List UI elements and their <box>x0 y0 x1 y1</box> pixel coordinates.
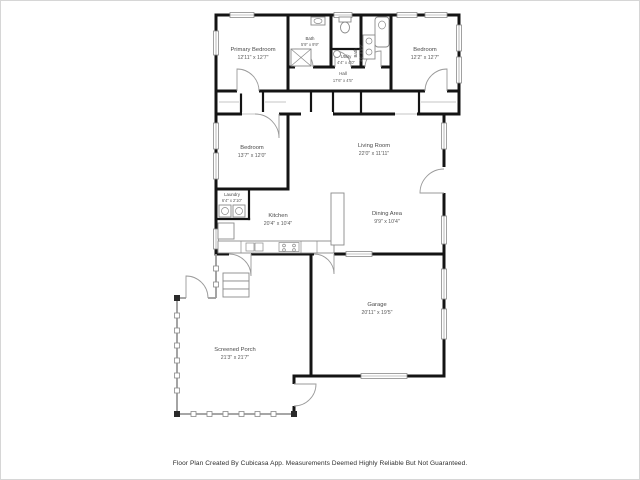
svg-text:Hall: Hall <box>339 71 347 76</box>
water-heater-icon <box>334 51 341 58</box>
opening-closet-2 <box>395 112 417 117</box>
svg-text:13'7" x 12'0": 13'7" x 12'0" <box>238 153 267 159</box>
door-patio-living <box>420 167 446 193</box>
shower-icon <box>291 49 311 66</box>
window <box>442 123 447 149</box>
floor-plan-canvas: Primary Bedroom 12'11" x 12'7" Bath 5'9"… <box>1 1 639 479</box>
svg-text:Dining Area: Dining Area <box>372 211 403 217</box>
svg-text:12'11" x 12'7": 12'11" x 12'7" <box>238 55 269 61</box>
room-label-hall: Hall 17'6" x 4'5" <box>333 71 354 83</box>
porch-corner-post <box>174 295 180 301</box>
svg-text:Living Room: Living Room <box>358 143 390 149</box>
room-label-bath-1: Bath 5'9" x 9'9" <box>301 36 319 47</box>
svg-text:Kitchen: Kitchen <box>268 213 287 219</box>
porch-corner-post <box>291 411 297 417</box>
svg-text:21'3" x 21'7": 21'3" x 21'7" <box>221 355 250 361</box>
svg-text:5'9" x 9'9": 5'9" x 9'9" <box>301 42 319 47</box>
door-bedroom-2 <box>425 69 447 94</box>
bathtub-icon <box>375 17 389 47</box>
svg-text:Primary Bedroom: Primary Bedroom <box>230 47 275 53</box>
window <box>442 216 447 244</box>
sink-icon <box>311 17 325 25</box>
room-label-bedroom-3: Bedroom 13'7" x 12'0" <box>238 145 267 159</box>
svg-text:17'6" x 4'5": 17'6" x 4'5" <box>333 78 354 83</box>
svg-text:20'4" x 10'4": 20'4" x 10'4" <box>264 221 293 227</box>
fridge-icon <box>218 223 234 239</box>
disclaimer-text: Floor Plan Created By Cubicasa App. Meas… <box>1 460 639 467</box>
svg-text:Laundry: Laundry <box>224 192 241 197</box>
svg-text:Bath: Bath <box>353 48 358 58</box>
room-label-garage: Garage 20'11" x 19'5" <box>362 302 393 316</box>
window <box>214 31 219 55</box>
room-label-primary-bedroom: Primary Bedroom 12'11" x 12'7" <box>230 47 275 61</box>
svg-text:20'11" x 19'5": 20'11" x 19'5" <box>362 310 393 316</box>
window <box>425 13 447 18</box>
door-bedroom-3 <box>255 112 279 138</box>
porch-steps-icon <box>223 273 249 297</box>
room-label-bedroom-2: Bedroom 12'2" x 12'7" <box>411 47 440 61</box>
window <box>346 252 372 257</box>
door-primary-bedroom <box>237 69 259 94</box>
room-label-dining-area: Dining Area 9'9" x 10'4" <box>372 211 403 225</box>
svg-text:4'4" x 4'0": 4'4" x 4'0" <box>337 60 355 65</box>
window <box>214 123 219 149</box>
window <box>442 309 447 339</box>
interior-walls <box>216 15 459 219</box>
door-porch-screen <box>186 276 208 300</box>
toilet-icon <box>339 17 351 33</box>
kitchen-counter <box>218 241 334 253</box>
vanity-icon <box>363 35 375 59</box>
opening-hall <box>301 112 333 117</box>
svg-text:Bedroom: Bedroom <box>413 47 437 53</box>
svg-text:22'0" x 11'11": 22'0" x 11'11" <box>359 151 390 157</box>
svg-text:4'6" x 9'9": 4'6" x 9'9" <box>359 44 364 62</box>
svg-text:9'9" x 10'4": 9'9" x 10'4" <box>374 219 400 225</box>
washer-dryer-icon <box>219 205 245 217</box>
window <box>230 13 254 18</box>
window <box>457 25 462 51</box>
window <box>397 13 417 18</box>
floor-plan-page: Primary Bedroom 12'11" x 12'7" Bath 5'9"… <box>0 0 640 480</box>
door-garage-entry <box>314 252 334 274</box>
door-breezeway <box>292 384 316 406</box>
svg-text:Screened Porch: Screened Porch <box>214 347 256 353</box>
svg-text:12'2" x 12'7": 12'2" x 12'7" <box>411 55 440 61</box>
svg-text:Garage: Garage <box>367 302 386 308</box>
room-label-living-room: Living Room 22'0" x 11'11" <box>358 143 390 157</box>
room-label-laundry: Laundry 6'4" x 2'10" <box>222 192 243 203</box>
window <box>442 269 447 299</box>
garage-door <box>361 374 407 379</box>
svg-text:Bedroom: Bedroom <box>240 145 264 151</box>
svg-text:Utility: Utility <box>341 54 353 59</box>
window <box>457 57 462 83</box>
door-kitchen-porch <box>229 252 251 276</box>
svg-text:6'4" x 2'10": 6'4" x 2'10" <box>222 198 243 203</box>
window <box>214 153 219 179</box>
room-label-screened-porch: Screened Porch 21'3" x 21'7" <box>214 347 256 361</box>
kitchen-peninsula <box>331 193 344 245</box>
room-label-kitchen: Kitchen 20'4" x 10'4" <box>264 213 293 227</box>
svg-text:Bath: Bath <box>305 36 315 41</box>
porch-corner-post <box>174 411 180 417</box>
